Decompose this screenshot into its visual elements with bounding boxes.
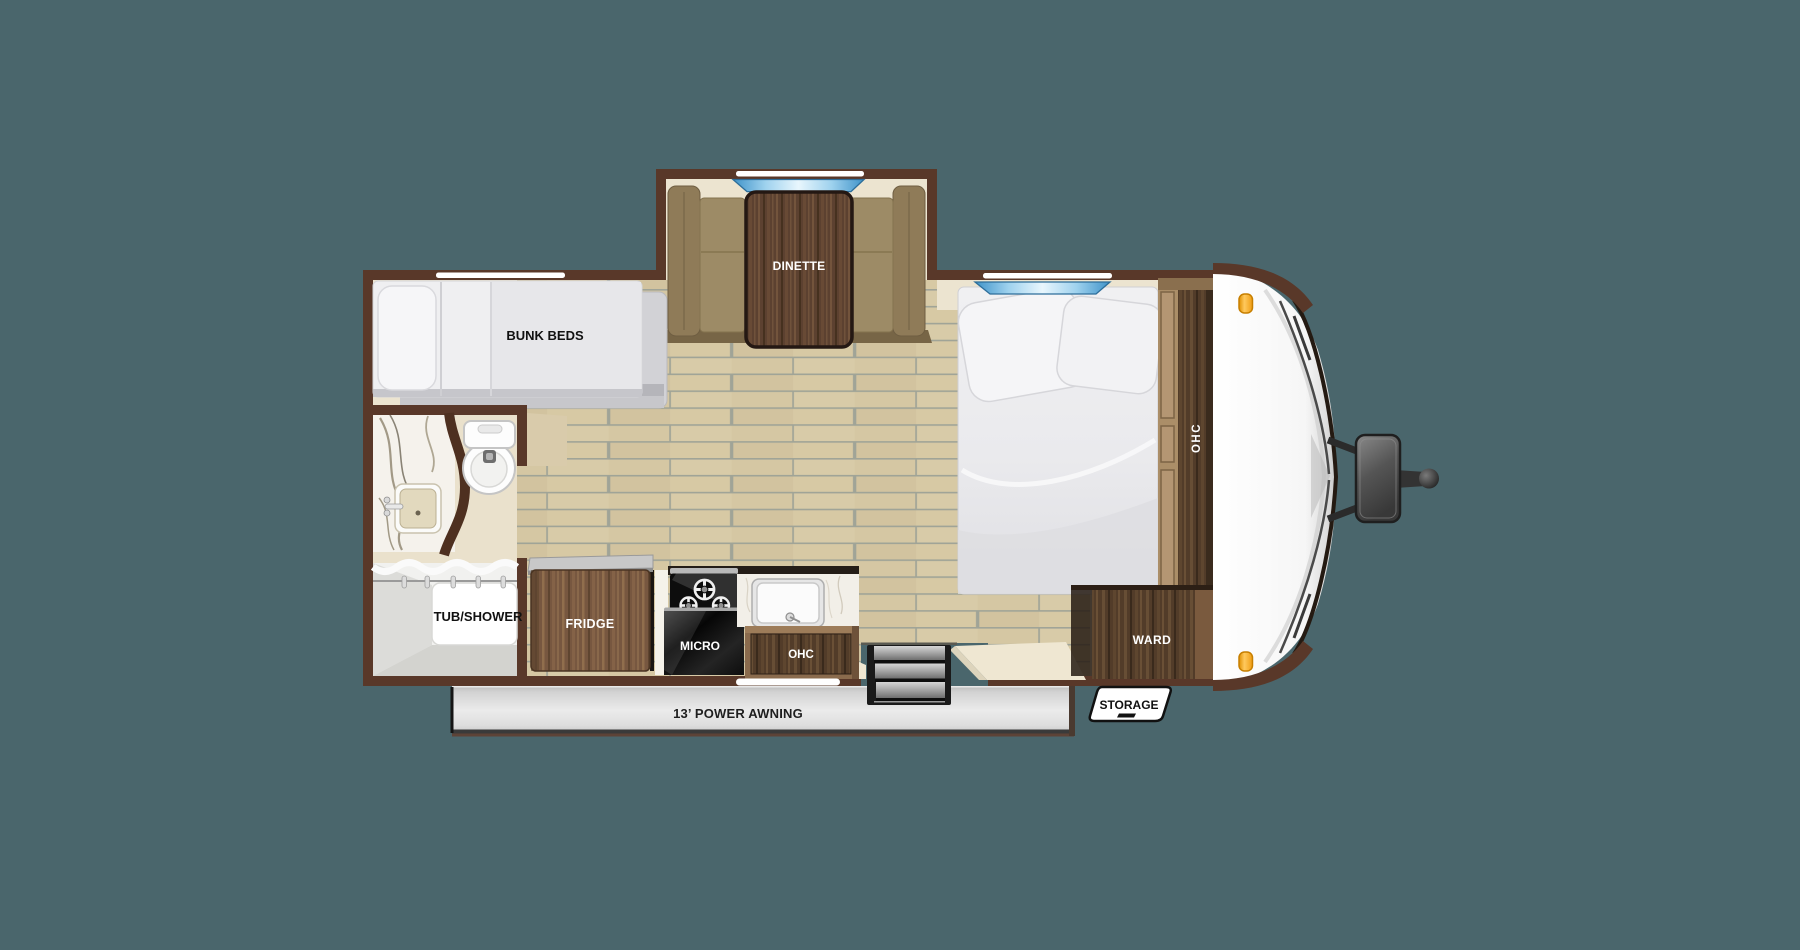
svg-text:DINETTE: DINETTE [773,259,826,273]
svg-text:FRIDGE: FRIDGE [565,617,614,631]
svg-text:13’ POWER AWNING: 13’ POWER AWNING [673,706,803,721]
svg-text:BUNK BEDS: BUNK BEDS [506,328,584,343]
svg-text:WARD: WARD [1133,633,1172,647]
svg-text:OHC: OHC [1191,423,1203,453]
svg-text:MICRO: MICRO [680,639,720,653]
svg-text:STORAGE: STORAGE [1099,698,1158,712]
svg-text:OHC: OHC [788,649,814,661]
svg-text:TUB/SHOWER: TUB/SHOWER [434,609,523,624]
